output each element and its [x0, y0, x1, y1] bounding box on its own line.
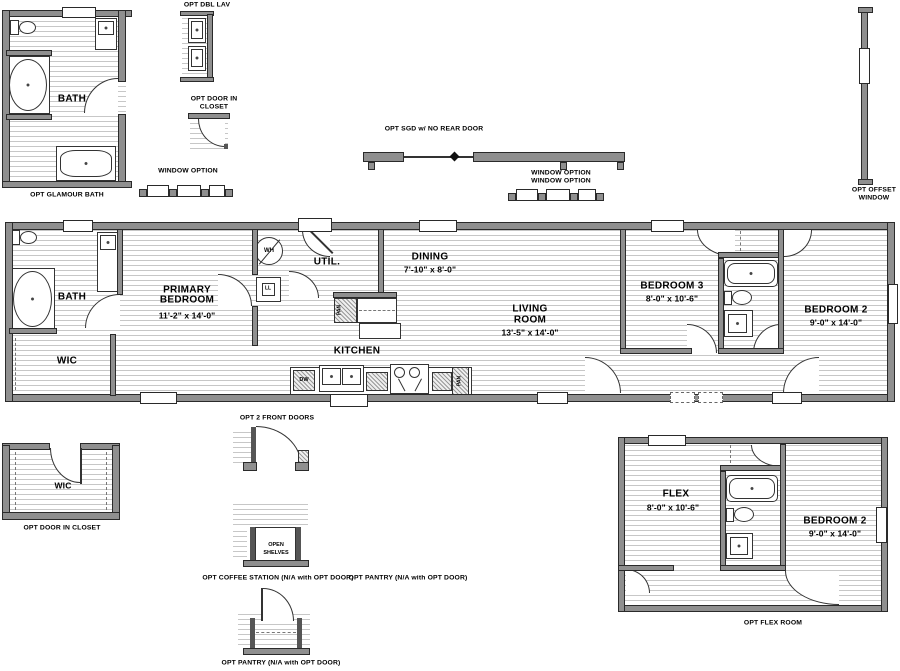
wall — [6, 50, 52, 56]
bathtub-basin — [727, 263, 775, 284]
wall — [363, 152, 404, 162]
room-label-wic: WIC — [57, 356, 77, 367]
closet-rod-dashed — [730, 445, 731, 463]
lavatory-2-basin — [191, 49, 203, 67]
room-label-util: UTIL. — [314, 257, 341, 268]
closet-rod-dashed — [106, 452, 107, 510]
dims-bedroom3: 8'-0" x 10'-6" — [646, 294, 698, 303]
window-pane — [177, 185, 201, 197]
exterior-wall-bottom — [618, 605, 888, 612]
caption-2-front-doors: OPT 2 FRONT DOORS — [240, 414, 314, 421]
shelf-post — [250, 527, 255, 561]
room-label-bath: BATH — [58, 292, 86, 303]
caption-pantry-right: OPT PANTRY (N/A with OPT DOOR) — [349, 574, 468, 581]
wall-post — [368, 162, 375, 170]
room-label-bedroom2: BEDROOM 2 — [804, 305, 867, 316]
wall — [252, 229, 258, 275]
caption-wic-door-in-closet: OPT DOOR IN CLOSET — [23, 524, 100, 531]
room-label-kitchen: KITCHEN — [334, 346, 381, 357]
burner — [394, 367, 405, 378]
wall — [9, 328, 57, 334]
offset-window-pane — [859, 48, 870, 84]
shelf-post — [296, 527, 301, 561]
window — [876, 507, 887, 543]
caption-sgd: OPT SGD w/ NO REAR DOOR — [385, 125, 484, 132]
door-hinge — [224, 144, 228, 149]
caption-coffee-station: OPT COFFEE STATION (N/A with OPT DOOR) — [202, 574, 353, 581]
closet-rod-dashed — [15, 338, 16, 390]
pantry-label-upper: PAN — [337, 305, 343, 315]
garden-tub-basin — [13, 271, 52, 327]
bathtub-basin — [729, 478, 775, 499]
dims-dining: 7'-10" x 8'-0" — [404, 265, 456, 274]
wall — [2, 445, 10, 520]
base-cabinet — [432, 372, 452, 391]
floor-hatch — [233, 500, 308, 527]
shower-pan — [60, 150, 112, 177]
floor-hatch — [233, 527, 247, 560]
window — [537, 392, 568, 404]
base-cabinet — [366, 372, 388, 391]
door-jamb — [251, 427, 256, 465]
optional-door-dashed — [698, 392, 723, 403]
wall-post — [243, 462, 257, 471]
exterior-wall-left — [5, 222, 13, 402]
window-pane — [546, 189, 570, 201]
window — [888, 284, 898, 324]
vanity-basin — [98, 21, 114, 35]
window-post — [570, 193, 578, 201]
dims-flex-bedroom2: 9'-0" x 14'-0" — [809, 529, 861, 538]
wall — [718, 252, 784, 258]
wall — [110, 334, 116, 396]
wall-post — [295, 462, 309, 471]
caption-window-option-mid-2: WINDOW OPTION — [531, 177, 591, 184]
dims-flex: 8'-0" x 10'-6" — [647, 503, 699, 512]
caption-offset-window-1: OPT OFFSET — [852, 186, 896, 193]
wall — [778, 229, 784, 354]
caption-window-option-left: WINDOW OPTION — [158, 167, 218, 174]
window-post — [508, 193, 516, 201]
window — [140, 392, 177, 404]
door-arc — [263, 588, 294, 621]
wall — [720, 471, 726, 571]
wall — [252, 306, 258, 346]
open-shelves-label-1: OPEN — [268, 542, 284, 548]
vanity-basin — [100, 235, 116, 250]
water-heater: WH — [255, 237, 283, 265]
sink-basin-left — [322, 368, 341, 385]
door-arc — [256, 426, 302, 467]
window — [62, 7, 96, 18]
door-leaf — [261, 588, 263, 621]
counter-dashed-line — [359, 310, 395, 311]
window-pane — [209, 185, 225, 197]
window-option-mid-diagram — [508, 189, 604, 202]
lavatory-1-basin — [191, 21, 203, 39]
caption-dbl-lav: OPT DBL LAV — [184, 1, 230, 8]
wall — [188, 113, 230, 119]
front-door-opening — [330, 394, 368, 407]
wall — [112, 445, 120, 520]
wall — [333, 292, 397, 298]
wall — [620, 348, 692, 354]
window — [648, 435, 686, 446]
wall — [620, 229, 626, 350]
wall — [473, 152, 625, 162]
toilet-bowl — [732, 290, 752, 305]
exterior-wall-bottom — [5, 394, 895, 402]
caption-pantry-bottom: OPT PANTRY (N/A with OPT DOOR) — [222, 659, 341, 666]
toilet-bowl — [734, 507, 754, 522]
wall — [180, 77, 214, 82]
linen-label: LL — [265, 286, 271, 292]
caption-flex-room: OPT FLEX ROOM — [744, 619, 802, 626]
room-label-wic-option: WIC — [54, 481, 71, 490]
window — [63, 220, 93, 232]
garden-tub-basin — [9, 59, 47, 111]
window-post — [139, 189, 147, 197]
room-label-dining: DINING — [412, 252, 449, 263]
window-post — [201, 189, 209, 197]
exterior-wall-left — [618, 437, 625, 612]
wall — [6, 114, 52, 120]
toilet-bowl — [20, 231, 37, 244]
dims-primary: 11'-2" x 14'-0" — [159, 311, 216, 320]
room-label-living-1: LIVING — [512, 304, 547, 315]
shelf-post — [250, 618, 255, 648]
room-label-primary-2: BEDROOM — [160, 295, 214, 306]
sgd-marker — [450, 152, 460, 162]
window-post — [596, 193, 604, 201]
caption-offset-window-2: WINDOW — [859, 194, 890, 201]
window-post — [225, 189, 233, 197]
wall — [2, 181, 132, 188]
closet-rod-dashed — [740, 231, 741, 251]
caption-glamour-bath: OPT GLAMOUR BATH — [30, 191, 104, 198]
wall — [618, 565, 674, 571]
window-pane — [147, 185, 169, 197]
wall — [118, 10, 126, 82]
toilet-bowl — [19, 21, 36, 34]
open-shelves-label-2: SHELVES — [263, 550, 288, 556]
shelf-post — [297, 618, 302, 648]
window-pane — [516, 189, 538, 201]
window — [419, 220, 457, 232]
caption-window-option-mid-1: WINDOW OPTION — [531, 169, 591, 176]
wall-post — [617, 162, 624, 170]
wall — [207, 14, 213, 79]
wall — [118, 114, 126, 188]
opt-flex-room-plan: FLEX 8'-0" x 10'-6" BEDROOM 2 9'-0" x 14… — [618, 437, 888, 629]
main-floor-plan: BATH WIC PRIMARY BEDROOM 11'-2" x 14'-0"… — [5, 222, 895, 402]
window — [651, 220, 684, 232]
rear-door-opening — [298, 218, 332, 232]
floor-hatch — [233, 428, 253, 464]
floor-plan-canvas: BATH OPT GLAMOUR BATH OPT DBL LAV OPT DO… — [0, 0, 900, 671]
room-label-bath: BATH — [58, 94, 86, 105]
closet-rod-dashed — [15, 452, 16, 510]
dims-bedroom2: 9'-0" x 14'-0" — [810, 318, 862, 327]
wall — [117, 229, 123, 295]
wall — [718, 348, 784, 354]
wall — [243, 560, 309, 567]
toilet-tank — [724, 291, 732, 305]
water-heater-blade — [259, 239, 280, 264]
wall — [2, 10, 10, 188]
optional-door-dashed — [670, 392, 695, 403]
opt-glamour-bath-plan: BATH — [2, 6, 132, 188]
dims-living: 13'-5" x 14'-0" — [501, 328, 558, 337]
wall — [858, 179, 873, 185]
toilet-tank — [726, 508, 734, 522]
room-label-bedroom3: BEDROOM 3 — [640, 281, 703, 292]
vanity-basin — [728, 314, 747, 333]
shelf-dashed-line — [256, 632, 296, 633]
pantry-label-lower: PAN — [457, 376, 463, 386]
room-label-living-2: ROOM — [514, 315, 546, 326]
kitchen-island — [359, 323, 401, 339]
vanity-basin — [730, 537, 748, 555]
window-post — [538, 193, 546, 201]
door-leaf — [80, 448, 82, 484]
wall — [243, 648, 310, 655]
window-post — [169, 189, 177, 197]
sink-basin-right — [342, 368, 361, 385]
window-pane — [578, 189, 596, 201]
wall — [780, 444, 786, 571]
wall — [378, 229, 384, 293]
toilet-tank — [10, 20, 19, 35]
wall — [861, 12, 868, 180]
caption-door-in-closet-1: OPT DOOR IN — [191, 95, 238, 102]
sgd-track-line — [404, 156, 473, 158]
burner — [409, 367, 420, 378]
wall — [2, 512, 120, 520]
caption-door-in-closet-2: CLOSET — [200, 103, 228, 110]
wall — [718, 258, 724, 354]
room-label-flex: FLEX — [663, 489, 690, 500]
wall — [720, 565, 786, 571]
window-option-left-diagram — [139, 185, 233, 198]
dishwasher-label: DW — [299, 377, 308, 383]
wall — [720, 465, 786, 471]
room-label-flex-bedroom2: BEDROOM 2 — [803, 516, 866, 527]
window — [772, 392, 802, 404]
